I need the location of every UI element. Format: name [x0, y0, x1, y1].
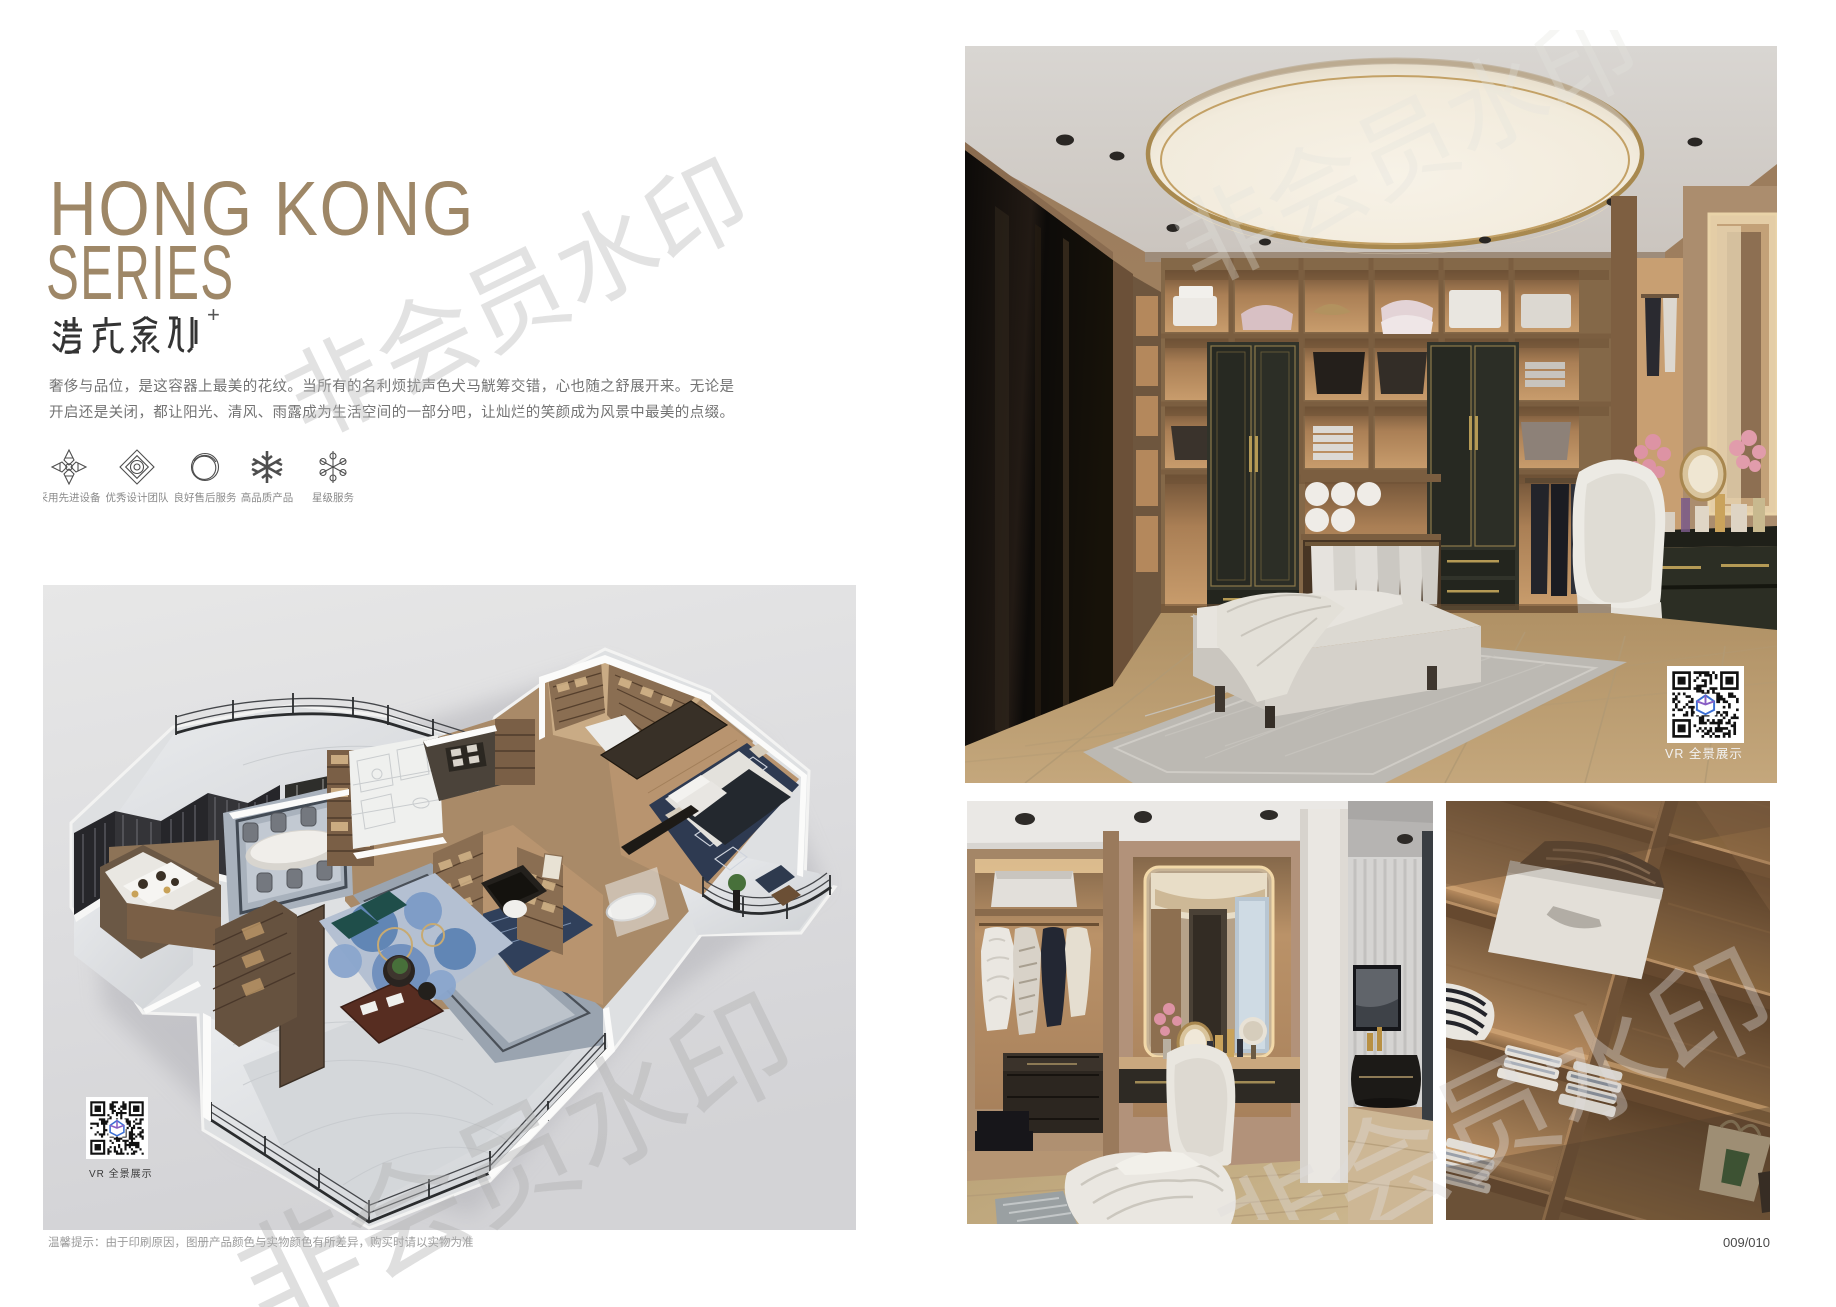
svg-text:良好售后服务: 良好售后服务	[174, 491, 237, 504]
svg-text:VR 全景展示: VR 全景展示	[89, 1167, 153, 1180]
svg-text:星级服务: 星级服务	[312, 491, 354, 504]
svg-text:优秀设计团队: 优秀设计团队	[106, 491, 169, 504]
svg-text:采用先进设备: 采用先进设备	[43, 491, 101, 504]
svg-text:VR 全景展示: VR 全景展示	[1665, 746, 1743, 761]
svg-text:高品质产品: 高品质产品	[241, 491, 294, 504]
